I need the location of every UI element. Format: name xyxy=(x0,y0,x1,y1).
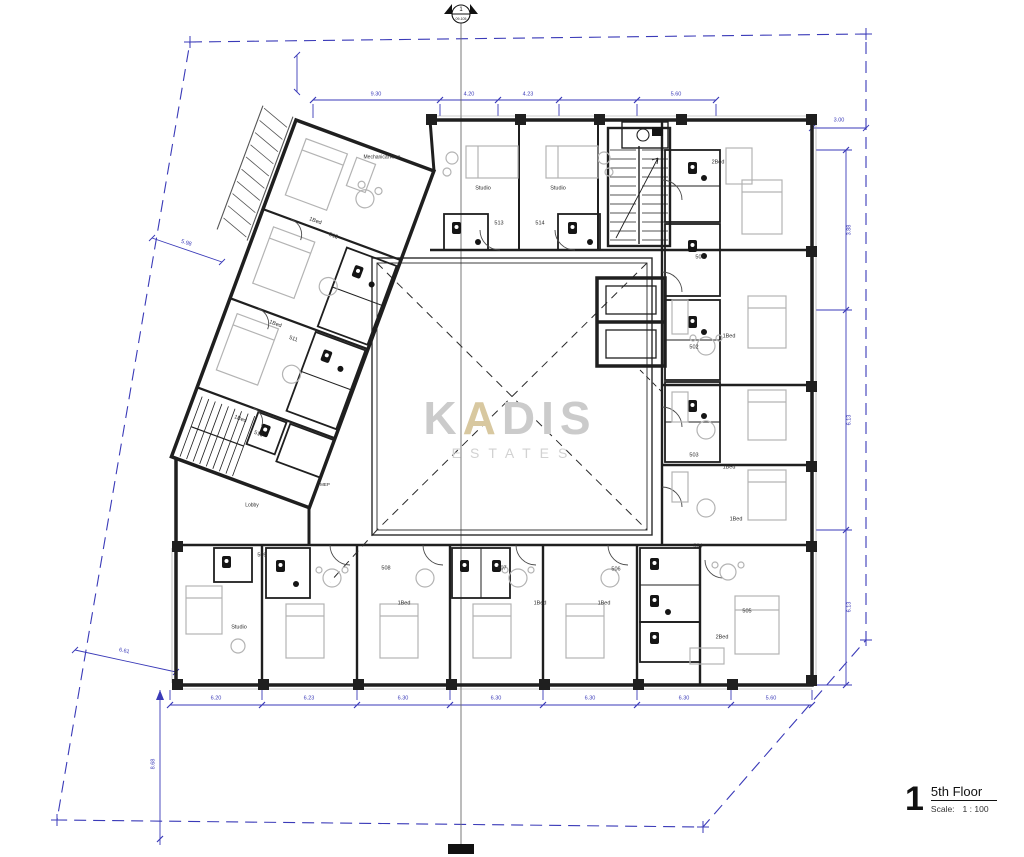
mechanical-area-label: Mechanical Area xyxy=(364,156,401,161)
dim-top-2: 4.20 xyxy=(464,92,475,98)
dim-bottom-2: 6.23 xyxy=(304,696,315,702)
section-marker-number: 1 xyxy=(459,7,462,13)
room-503-type: 1Bed xyxy=(723,465,736,471)
room-501-type: 2Bed xyxy=(712,160,725,166)
dim-top-right: 3.00 xyxy=(834,118,845,124)
dim-top-3: 4.23 xyxy=(523,92,534,98)
room-501-number: 501 xyxy=(695,255,704,261)
dim-right-1: 3.88 xyxy=(847,225,853,236)
room-514-type: Studio xyxy=(550,186,566,192)
room-506-number: 506 xyxy=(611,567,620,573)
wing-fixtures xyxy=(259,254,379,455)
stair-top xyxy=(608,122,670,246)
room-507-number: 507 xyxy=(497,566,506,572)
room-508-number: 508 xyxy=(381,566,390,572)
room-506-type: 1Bed xyxy=(598,601,611,607)
section-marker-sheet: 09-105 xyxy=(456,17,467,21)
room-509-type: Studio xyxy=(231,625,247,631)
dim-bottom-4: 6.30 xyxy=(491,696,502,702)
room-502-type: 1Bed xyxy=(723,334,736,340)
room-503-number: 503 xyxy=(689,453,698,459)
view-title: 5th Floor xyxy=(931,784,997,801)
balcony-hatch xyxy=(217,106,293,241)
dim-top-4: 5.60 xyxy=(671,92,682,98)
dim-right-2: 6.13 xyxy=(847,415,853,426)
dim-bottom-1: 6.20 xyxy=(211,696,222,702)
room-509-number: 509 xyxy=(257,553,266,559)
left-wing xyxy=(138,106,435,508)
room-507-type: 1Bed xyxy=(534,601,547,607)
dim-top-1: 9.30 xyxy=(371,92,382,98)
room-504-number: 504 xyxy=(693,544,702,550)
scale-value: 1 : 100 xyxy=(963,804,989,814)
room-504-type: 1Bed xyxy=(730,517,743,523)
dim-bottom-6: 6.30 xyxy=(679,696,690,702)
room-505-number: 505 xyxy=(742,609,751,615)
room-513-number: 513 xyxy=(494,221,503,227)
dim-bottom-7: 5.60 xyxy=(766,696,777,702)
scale-label: Scale: xyxy=(931,804,955,814)
room-505-type: 2Bed xyxy=(716,635,729,641)
dim-bottom-3: 6.30 xyxy=(398,696,409,702)
dim-right-3: 6.13 xyxy=(847,602,853,613)
title-block: 1 5th Floor Scale: 1 : 100 xyxy=(905,784,997,815)
room-513-type: Studio xyxy=(475,186,491,192)
room-502-number: 502 xyxy=(689,345,698,351)
mep-label: MEP xyxy=(320,483,330,488)
dim-arrow xyxy=(156,690,164,700)
dim-bottom-5: 6.30 xyxy=(585,696,596,702)
view-number: 1 xyxy=(905,784,924,815)
watermark-gold-letter: A xyxy=(463,392,502,444)
section-marker-bottom xyxy=(448,844,474,854)
watermark-subtitle: ESTATES xyxy=(452,445,577,461)
elevator-shafts xyxy=(597,278,665,392)
watermark: KADIS xyxy=(423,391,596,445)
dim-left-vertical: 8.68 xyxy=(151,759,157,770)
room-508-type: 1Bed xyxy=(398,601,411,607)
room-514-number: 514 xyxy=(535,221,544,227)
lobby-label: Lobby xyxy=(245,504,259,509)
floor-plan-sheet: KADIS ESTATES 1 5th Floor Scale: 1 : 100… xyxy=(0,0,1024,857)
